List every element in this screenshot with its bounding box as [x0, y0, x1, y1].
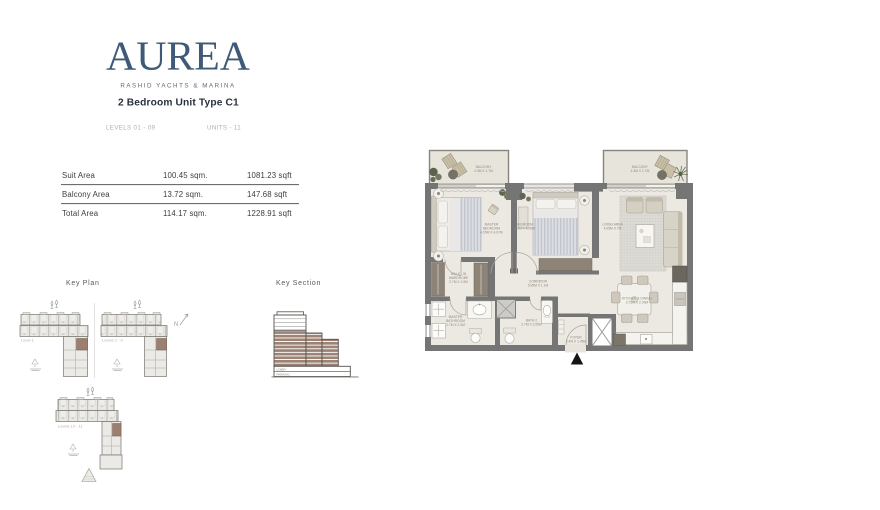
svg-text:3.75M X 2.05M: 3.75M X 2.05M — [626, 301, 649, 305]
svg-text:N: N — [174, 322, 178, 328]
svg-text:2.7M X 1.9M: 2.7M X 1.9M — [449, 280, 468, 284]
svg-text:LOBBY: LOBBY — [277, 367, 287, 371]
svg-text:4.05M X 7M: 4.05M X 7M — [604, 227, 622, 231]
svg-text:100.45 sqm.: 100.45 sqm. — [163, 171, 208, 180]
svg-text:4.05M X 4.07M: 4.05M X 4.07M — [480, 231, 503, 235]
svg-text:PARKING: PARKING — [277, 372, 291, 376]
svg-text:2.7M X 2.05M: 2.7M X 2.05M — [521, 323, 542, 327]
svg-text:Key Plan: Key Plan — [66, 280, 100, 287]
svg-text:UNITS - 11: UNITS - 11 — [207, 125, 241, 132]
svg-text:2.7M X 2.3M: 2.7M X 2.3M — [446, 323, 465, 327]
svg-text:Suit Area: Suit Area — [62, 171, 96, 180]
svg-text:4.3M X 1.7M: 4.3M X 1.7M — [631, 169, 650, 173]
svg-text:1228.91 sqft: 1228.91 sqft — [247, 209, 292, 218]
svg-text:Levels 10 - 11: Levels 10 - 11 — [58, 424, 84, 429]
svg-text:AUREA: AUREA — [106, 33, 250, 79]
svg-text:5.95M X 1.1M: 5.95M X 1.1M — [528, 284, 549, 288]
svg-text:114.17 sqm.: 114.17 sqm. — [163, 209, 207, 218]
svg-text:147.68 sqft: 147.68 sqft — [247, 190, 288, 199]
svg-text:Key Section: Key Section — [276, 280, 321, 287]
svg-text:Levels 2 - 9: Levels 2 - 9 — [102, 338, 123, 343]
svg-text:13.72 sqm.: 13.72 sqm. — [163, 190, 203, 199]
svg-text:3.6M X 4.05M: 3.6M X 4.05M — [514, 227, 535, 231]
svg-text:2 Bedroom Unit Type C1: 2 Bedroom Unit Type C1 — [118, 98, 239, 109]
svg-text:LEVELS 01 - 09: LEVELS 01 - 09 — [106, 125, 155, 132]
svg-text:RASHID YACHTS & MARINA: RASHID YACHTS & MARINA — [120, 83, 235, 90]
svg-text:4.3M X 1.7M: 4.3M X 1.7M — [474, 169, 493, 173]
svg-text:2.4M X 1.45M: 2.4M X 1.45M — [566, 340, 587, 344]
svg-text:Balcony Area: Balcony Area — [62, 190, 110, 199]
svg-text:1081.23 sqft: 1081.23 sqft — [247, 171, 292, 180]
svg-text:Total Area: Total Area — [62, 209, 99, 218]
svg-text:Level 1: Level 1 — [21, 338, 35, 343]
